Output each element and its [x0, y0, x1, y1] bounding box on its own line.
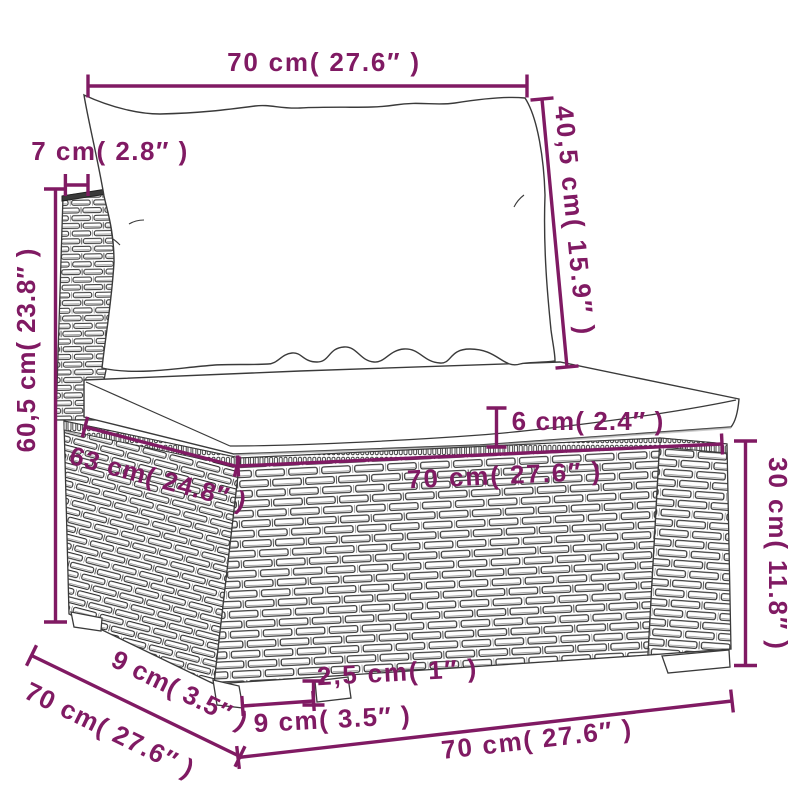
svg-text:60,5 cm( 23.8″ ): 60,5 cm( 23.8″ ) [11, 248, 41, 453]
svg-text:70 cm( 27.6″ ): 70 cm( 27.6″ ) [227, 47, 421, 77]
svg-text:7 cm( 2.8″ ): 7 cm( 2.8″ ) [31, 136, 189, 166]
svg-text:6 cm( 2.4″ ): 6 cm( 2.4″ ) [512, 406, 665, 436]
svg-text:30 cm( 11.8″ ): 30 cm( 11.8″ ) [763, 457, 793, 651]
